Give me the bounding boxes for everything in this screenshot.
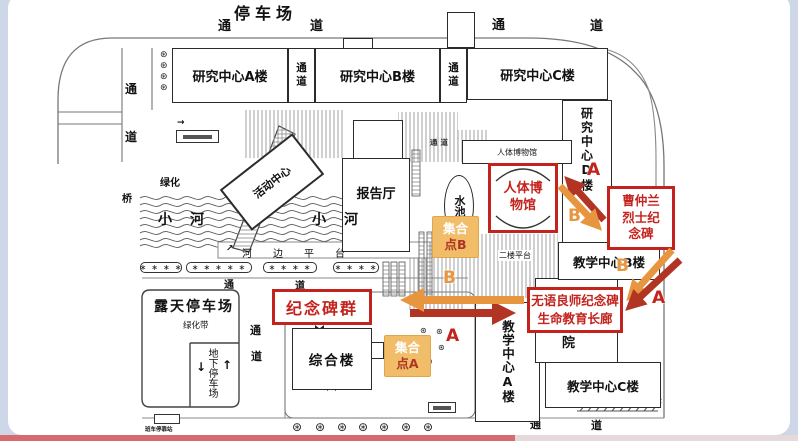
tree-icon: ⊛ bbox=[292, 420, 302, 434]
road-label-dao-top-right: 道 bbox=[590, 15, 603, 34]
green-belt-label: 绿化带 bbox=[183, 319, 209, 331]
open-parking-label: 露天停车场 bbox=[154, 296, 234, 316]
silent-mentor-annotation-box: 无语良师纪念碑 生命教育长廊 bbox=[527, 287, 623, 333]
passage-column-bc-label: 通道 bbox=[446, 62, 461, 89]
route-b-marker-3: B bbox=[443, 268, 456, 288]
sign-arrow-right: → bbox=[177, 118, 185, 128]
cao-memorial-line2: 烈士纪 bbox=[622, 210, 660, 227]
ramp-up-arrow: ↑ bbox=[222, 358, 232, 372]
lecture-hall-upper-block bbox=[353, 120, 403, 160]
building-research-b-label: 研究中心B楼 bbox=[340, 66, 415, 85]
building-complex: 综合楼 bbox=[292, 328, 372, 390]
video-progress-bar[interactable] bbox=[0, 435, 798, 441]
tree-icon: ⊛ bbox=[423, 420, 433, 434]
assembly-point-a: 集合 点A bbox=[384, 335, 431, 377]
tree-icon: ⊛ bbox=[160, 72, 168, 82]
passage-column-ab: 通道 bbox=[288, 48, 315, 103]
road-label-dao-v: 道 bbox=[251, 348, 262, 364]
bus-stop-sign bbox=[154, 414, 180, 424]
river-label-left: 小河 bbox=[158, 209, 222, 229]
museum-annotation-box: 人体博 物馆 bbox=[488, 163, 558, 233]
building-research-b: 研究中心B楼 bbox=[315, 48, 440, 103]
campus-map: 停车场 通 道 通 道 通 道 桥 通道 通 道 通 道 通 道 研究中心A楼 … bbox=[0, 0, 798, 441]
building-research-a: 研究中心A楼 bbox=[172, 48, 288, 103]
tree-icon: ⊛ bbox=[436, 327, 443, 336]
building-complex-label: 综合楼 bbox=[309, 349, 356, 369]
passage-column-bc: 通道 bbox=[440, 48, 467, 103]
tree-icon: ⊛ bbox=[160, 83, 168, 93]
building-research-c: 研究中心C楼 bbox=[467, 48, 608, 100]
shrub-icons: ∗∗∗∗ bbox=[140, 263, 187, 272]
passage-column-ab-label: 通道 bbox=[294, 62, 309, 89]
road-label-passage-tiny: 通道 bbox=[430, 137, 451, 148]
building-museum-small: 人体博物馆 bbox=[462, 140, 572, 164]
green-area-label: 绿化 bbox=[160, 174, 180, 189]
assembly-point-b: 集合 点B bbox=[432, 216, 479, 258]
tower-block bbox=[447, 12, 475, 48]
monuments-label: 纪念碑群 bbox=[286, 295, 358, 319]
assembly-point-a-line2: 点A bbox=[396, 356, 418, 372]
silent-mentor-line1: 无语良师纪念碑 bbox=[531, 292, 619, 310]
hedge-strip: ∗∗∗∗ bbox=[140, 262, 182, 273]
road-label-tong-top-left: 通 bbox=[218, 15, 231, 34]
building-lecture-hall: 报告厅 bbox=[342, 158, 410, 252]
tree-icon: ⊛ bbox=[337, 420, 347, 434]
river-label-right: 小河 bbox=[312, 209, 376, 229]
sign-illegible bbox=[176, 130, 219, 143]
sign-illegible-2 bbox=[428, 402, 456, 413]
road-label-tong-v: 通 bbox=[250, 322, 261, 338]
cao-memorial-line1: 曹仲兰 bbox=[622, 193, 660, 210]
building-activity-center-label: 活动中心 bbox=[250, 162, 295, 202]
bridge-label: 桥 bbox=[122, 190, 132, 205]
building-yuan-label: 院 bbox=[562, 332, 575, 351]
route-a-marker-2: A bbox=[652, 288, 665, 308]
tree-icon: ⊛ bbox=[420, 326, 427, 335]
silent-mentor-line2: 生命教育长廊 bbox=[537, 310, 612, 328]
building-teach-a-label: 教学中心A楼 bbox=[498, 320, 517, 404]
riverside-platform-label: 河边平台 bbox=[242, 245, 366, 260]
tree-icon: ⊛ bbox=[160, 61, 168, 71]
building-research-c-label: 研究中心C楼 bbox=[500, 65, 575, 84]
tree-icon: ⊛ bbox=[379, 420, 389, 434]
walkway-arrow-ne: ↗ bbox=[226, 244, 234, 254]
hedge-strip: ∗∗∗∗∗ bbox=[186, 262, 252, 273]
complex-annex bbox=[371, 342, 384, 359]
building-lecture-hall-label: 报告厅 bbox=[356, 183, 395, 202]
route-b-marker-2: B bbox=[616, 256, 629, 276]
road-label-tong-top-right: 通 bbox=[492, 14, 505, 33]
video-progress-fill bbox=[0, 435, 515, 441]
tree-icon: ⊛ bbox=[315, 420, 325, 434]
monuments-annotation-box: 纪念碑群 bbox=[272, 289, 372, 325]
museum-annotation-line2: 物馆 bbox=[510, 198, 536, 215]
cao-memorial-line3: 念碑 bbox=[628, 226, 653, 243]
building-research-a-label: 研究中心A楼 bbox=[192, 66, 267, 85]
hedge-strip: ∗∗∗∗ bbox=[263, 262, 317, 273]
tree-icon: ⊛ bbox=[358, 420, 368, 434]
road-label-tong-mid: 通 bbox=[224, 276, 234, 291]
parking-lot-title: 停车场 bbox=[234, 0, 297, 24]
cao-memorial-annotation-box: 曹仲兰 烈士纪 念碑 bbox=[607, 186, 675, 250]
museum-annotation-line1: 人体博 bbox=[503, 181, 542, 198]
building-teach-c-label: 教学中心C楼 bbox=[567, 376, 639, 395]
road-label-dao-bottom: 道 bbox=[591, 417, 602, 433]
route-b-marker-1: B bbox=[568, 206, 581, 226]
shrub-icons: ∗∗∗∗ bbox=[335, 263, 382, 272]
road-label-tong-left: 通 bbox=[125, 80, 137, 97]
shrub-icons: ∗∗∗∗∗ bbox=[192, 263, 251, 272]
building-research-d-label: 研究中心D楼 bbox=[579, 107, 596, 193]
tree-icon: ⊛ bbox=[160, 50, 168, 60]
sign-smudge bbox=[183, 135, 212, 139]
assembly-point-a-line1: 集合 bbox=[395, 340, 420, 356]
road-label-dao-top-left: 道 bbox=[310, 15, 323, 34]
hedge-strip: ∗∗∗∗ bbox=[333, 262, 379, 273]
building-teach-c: 教学中心C楼 bbox=[545, 362, 661, 408]
building-museum-small-label: 人体博物馆 bbox=[497, 147, 537, 158]
assembly-point-b-line1: 集合 bbox=[443, 221, 468, 237]
second-floor-platform-label: 二楼平台 bbox=[498, 250, 532, 261]
route-a-marker-3: A bbox=[446, 326, 459, 346]
underground-parking-label: 地下停车场 bbox=[204, 348, 219, 398]
bus-stop-label: 班车停靠站 bbox=[145, 425, 173, 433]
building-teach-b-label: 教学中心B楼 bbox=[573, 252, 645, 271]
tree-icon: ⊛ bbox=[438, 343, 445, 352]
tree-icon: ⊛ bbox=[401, 420, 411, 434]
route-a-marker-1: A bbox=[587, 160, 600, 180]
sign-smudge bbox=[433, 406, 451, 410]
assembly-point-b-line2: 点B bbox=[444, 237, 466, 253]
road-label-dao-left: 道 bbox=[125, 128, 137, 145]
shrub-icons: ∗∗∗∗ bbox=[269, 263, 316, 272]
water-pool-label: 水池 bbox=[451, 195, 467, 217]
